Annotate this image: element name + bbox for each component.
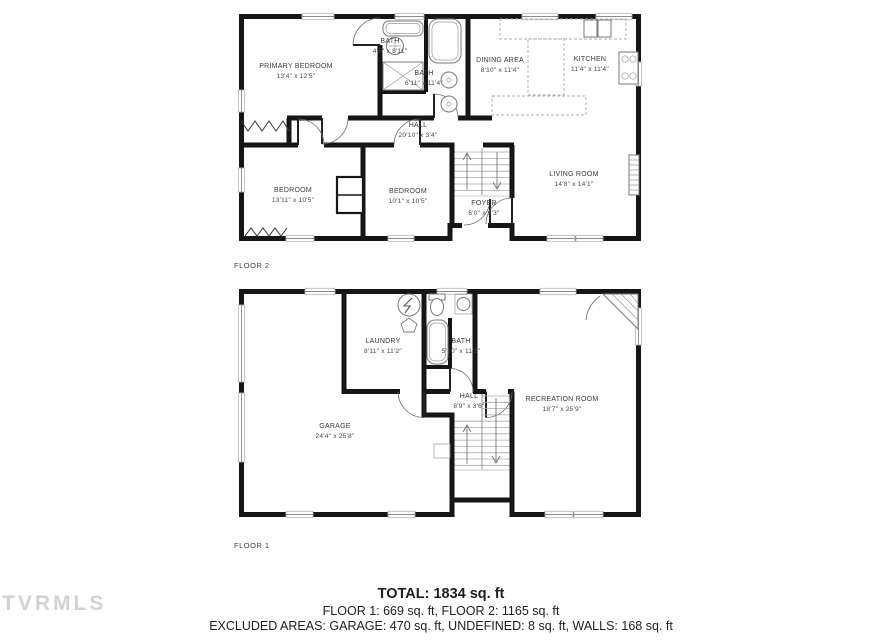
room-dims: 10'1" x 10'5" <box>389 197 428 206</box>
utility-box <box>434 444 450 458</box>
window <box>540 288 576 294</box>
kitchen-sink-icon <box>598 20 611 37</box>
window <box>286 511 313 517</box>
room-label-bedroom-1: BEDROOM 13'11" x 10'5" <box>272 186 314 205</box>
room-dims: 6'0" x 9'3" <box>468 209 499 218</box>
room-name: LAUNDRY <box>364 337 402 347</box>
floor2-caption: FLOOR 2 <box>234 261 270 270</box>
window <box>238 168 244 192</box>
window <box>302 13 334 19</box>
room-label-hall-upper: HALL 20'10" x 3'4" <box>399 121 438 140</box>
window <box>574 511 603 517</box>
room-dims: 6'11" x 11'4" <box>405 79 443 88</box>
room-name: BEDROOM <box>389 187 428 197</box>
room-label-foyer: FOYER 6'0" x 9'3" <box>468 199 499 218</box>
bedroom-closet <box>337 177 363 213</box>
sink-icon <box>441 72 457 88</box>
room-name: LIVING ROOM <box>549 170 598 180</box>
toilet-icon <box>429 294 445 316</box>
room-name: KITCHEN <box>571 55 609 65</box>
window <box>547 235 575 241</box>
floorplan-canvas <box>0 0 882 640</box>
kitchen-counter <box>492 96 586 115</box>
room-dims: 13'4" x 12'5" <box>259 72 333 81</box>
room-dims: 24'4" x 25'8" <box>316 432 355 441</box>
water-heater-icon <box>398 294 420 332</box>
room-name: BEDROOM <box>272 186 314 196</box>
window <box>395 13 424 19</box>
kitchen-counter <box>528 39 564 95</box>
room-name: BATH <box>373 37 408 47</box>
room-label-kitchen: KITCHEN 11'4" x 11'4" <box>571 55 609 74</box>
window <box>305 288 335 294</box>
room-label-primary-bedroom: PRIMARY BEDROOM 13'4" x 12'5" <box>259 62 333 81</box>
room-label-laundry: LAUNDRY 8'11" x 11'2" <box>364 337 402 356</box>
room-name: HALL <box>399 121 438 131</box>
floor-areas: FLOOR 1: 669 sq. ft, FLOOR 2: 1165 sq. f… <box>0 604 882 618</box>
room-label-bedroom-2: BEDROOM 10'1" x 10'5" <box>389 187 428 206</box>
room-dims: 14'8" x 14'1" <box>549 180 598 189</box>
room-dims: 4'5" x 8'11" <box>373 47 408 56</box>
room-dims: 5'10" x 11'2" <box>442 347 480 356</box>
room-dims: 13'11" x 10'5" <box>272 196 314 205</box>
floor1-caption: FLOOR 1 <box>234 541 270 550</box>
bathtub-icon <box>429 19 461 63</box>
room-name: HALL <box>453 392 484 402</box>
window <box>545 511 573 517</box>
room-name: GARAGE <box>316 422 355 432</box>
kitchen-sink-icon <box>584 20 597 37</box>
mls-watermark: TVRMLS <box>2 592 106 616</box>
garage-door <box>238 393 244 462</box>
garage-door <box>238 305 244 382</box>
room-name: BATH <box>405 69 443 79</box>
room-name: FOYER <box>468 199 499 209</box>
corner-shower-icon <box>586 294 638 329</box>
room-name: BATH <box>442 337 480 347</box>
window <box>238 90 244 112</box>
sink-icon <box>455 294 472 314</box>
room-name: RECREATION ROOM <box>526 395 599 405</box>
excluded-areas: EXCLUDED AREAS: GARAGE: 470 sq. ft, UNDE… <box>0 619 882 633</box>
room-dims: 8'10" x 11'4" <box>476 66 524 75</box>
room-dims: 20'10" x 3'4" <box>399 131 438 140</box>
window <box>388 511 415 517</box>
floor1-fixtures <box>398 294 638 458</box>
total-area: TOTAL: 1834 sq. ft <box>0 586 882 602</box>
room-dims: 18'7" x 25'9" <box>526 405 599 414</box>
stairs <box>455 148 510 196</box>
room-label-recreation-room: RECREATION ROOM 18'7" x 25'9" <box>526 395 599 414</box>
floorplan-page: PRIMARY BEDROOM 13'4" x 12'5" BATH 4'5" … <box>0 0 882 640</box>
room-dims: 8'11" x 11'2" <box>364 347 402 356</box>
room-label-bath2-upper: BATH 6'11" x 11'4" <box>405 69 443 88</box>
room-label-hall-lower: HALL 8'9" x 3'6" <box>453 392 484 411</box>
room-label-dining-area: DINING AREA 8'10" x 11'4" <box>476 56 524 75</box>
closet-bifold-icon <box>241 121 289 131</box>
fireplace-icon <box>629 155 639 195</box>
sink-icon <box>441 96 457 112</box>
floor2-plan <box>238 13 641 241</box>
room-label-bath-lower: BATH 5'10" x 11'2" <box>442 337 480 356</box>
room-label-living-room: LIVING ROOM 14'8" x 14'1" <box>549 170 598 189</box>
window <box>576 235 603 241</box>
room-dims: 8'9" x 3'6" <box>453 402 484 411</box>
area-summary: TOTAL: 1834 sq. ft FLOOR 1: 669 sq. ft, … <box>0 586 882 634</box>
room-label-bath-upper: BATH 4'5" x 8'11" <box>373 37 408 56</box>
room-label-garage: GARAGE 24'4" x 25'8" <box>316 422 355 441</box>
window <box>286 235 314 241</box>
closet-bifold-icon <box>245 228 287 236</box>
room-dims: 11'4" x 11'4" <box>571 65 609 74</box>
room-name: PRIMARY BEDROOM <box>259 62 333 72</box>
window <box>388 235 414 241</box>
room-name: DINING AREA <box>476 56 524 66</box>
